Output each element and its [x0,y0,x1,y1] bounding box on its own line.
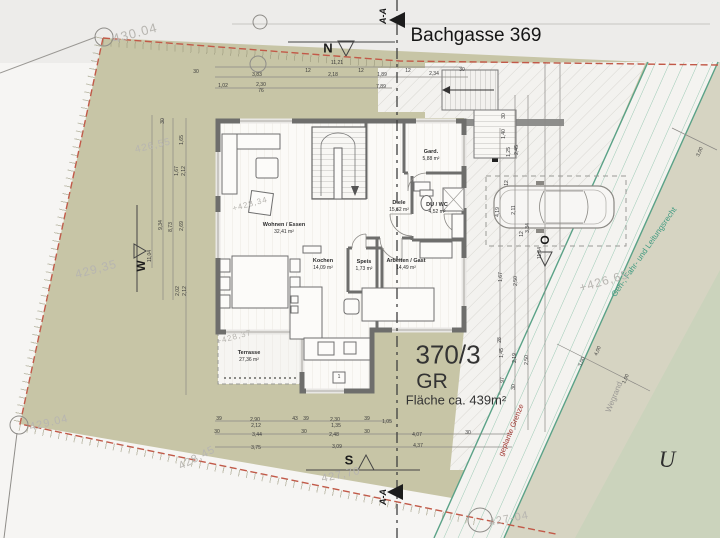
dimension-label: 12 [305,68,311,74]
dimension-label: 2,12 [251,423,261,429]
dimension-label: 3,44 [252,432,262,438]
dimension-label: 12 [519,231,525,237]
dimension-label: 97 [500,377,506,383]
survey-elevation-label: 427-04 [488,509,530,528]
room-name: DU / WC [426,202,448,209]
dimension-label: 4,07 [412,432,422,438]
dimension-label: 1,67 [174,166,180,176]
room-label: Terrasse27,36 m² [238,350,261,364]
dimension-label: 3,00 [577,356,586,367]
room-name: Kochen [313,258,333,265]
dimension-label: 30 [160,118,166,124]
easement-label: Geh-, Fahr- und Leitungsrecht [610,206,679,299]
dimension-label: 1,89 [377,72,387,78]
dimension-label: 2,48 [329,432,339,438]
section-label-bottom: A-A [378,489,388,505]
path-edge-label: Wegrand [604,380,624,413]
survey-elevation-label: 427,70 [320,465,361,485]
dimension-label: 1,35 [331,423,341,429]
compass-north-label: N [323,41,332,56]
dimension-label: 30 [459,67,465,73]
room-area: 4,52 m² [426,209,448,216]
parcel-number: 370/3 [415,340,480,371]
compass-west-label: W [134,260,148,271]
dimension-label: 2,12 [181,166,187,176]
room-label: Wohnen / Essen32,41 m² [263,222,305,236]
dimension-label: 3,34 [525,223,531,233]
room-area: 5,88 m² [423,156,440,163]
dimension-label: 2,12 [182,286,188,296]
dimension-label: 3,00 [695,146,704,157]
dimension-label: 1,40 [501,129,507,139]
dimension-label: 1,45 [499,348,505,358]
dimension-label: 1,02 [218,83,228,89]
dimension-label: 1,00 [621,373,630,384]
dimension-label: 28 [497,337,503,343]
dimension-label: 12 [405,68,411,74]
dimension-label: 2,19 [512,353,518,363]
room-label: Diele15,62 m² [389,200,409,214]
survey-elevation-label: 429,35 [74,257,119,282]
dimension-label: 1,67 [498,272,504,282]
room-area: 15,62 m² [389,207,409,214]
dimension-label: 4,00 [593,345,602,356]
room-label: Gard.5,88 m² [423,149,440,163]
parcel-area: Fläche ca. 439m² [406,393,506,408]
survey-elevation-label: +428,34 [231,195,268,213]
room-name: Arbeiten / Gast [386,258,425,265]
dimension-label: 30 [301,429,307,435]
dimension-label: 12 [358,68,364,74]
neighbor-parcel-label: U [659,447,676,473]
survey-elevation-label: 429.04 [28,413,69,434]
room-label: DU / WC4,52 m² [426,202,448,216]
dimension-label: 4,37 [413,443,423,449]
dimension-label: 39 [364,416,370,422]
room-area: 14,49 m² [386,265,425,272]
dimension-label: 2,18 [328,72,338,78]
dimension-label: 1,05 [382,419,392,425]
dimension-label: 1,25 [506,147,512,157]
dimension-label: 2,02 [175,286,181,296]
room-name: Terrasse [238,350,261,357]
room-name: Diele [389,200,409,207]
dimension-label: 30 [193,69,199,75]
dimension-label: 8,73 [168,222,174,232]
room-area: 32,41 m² [263,229,305,236]
dimension-label: 2,50 [524,355,530,365]
street-name: Bachgasse 369 [411,25,542,47]
dimension-label: 30 [214,429,220,435]
room-label: Arbeiten / Gast14,49 m² [386,258,425,272]
room-name: Wohnen / Essen [263,222,305,229]
dimension-label: 9,34 [158,220,164,230]
section-label-top: A-A [378,8,388,24]
dimension-label: 3,83 [252,72,262,78]
dimension-label: 11,84 [537,247,543,259]
room-label: Kochen14,09 m² [313,258,333,272]
dimension-label: 43 [292,416,298,422]
survey-elevation-label: 428,45 [177,444,218,473]
site-plan: Bachgasse 369 370/3 GR Fläche ca. 439m² … [0,0,720,538]
dimension-label: 30 [511,384,517,390]
dimension-label: 3,75 [251,445,261,451]
planned-boundary-label: geplante Grenze [496,403,525,458]
dimension-label: 76 [258,88,264,94]
parcel-type: GR [416,370,448,394]
dimension-label: 11,04 [147,250,153,262]
dimension-label: 39 [216,416,222,422]
dimension-label: 39 [303,416,309,422]
dimension-label: 3,09 [332,444,342,450]
room-name: Gard. [423,149,440,156]
dimension-label: 1,65 [179,135,185,145]
dimension-label: 4,19 [495,207,501,217]
survey-elevation-label: 430.04 [111,20,159,46]
dimension-label: 2,50 [513,276,519,286]
dimension-label: 12 [504,180,510,186]
dimension-label: 2,11 [511,205,517,214]
room-name: Speis [356,259,373,266]
survey-elevation-label: 426,55 [134,137,172,156]
room-area: 1,73 m² [356,266,373,273]
dimension-label: 2,69 [179,221,185,231]
dimension-label: 11,21 [331,60,343,66]
dimension-label: 7,89 [376,84,386,90]
dimension-label: 2,34 [429,71,439,77]
dimension-label: 2,45 [514,145,520,155]
room-area: 14,09 m² [313,265,333,272]
compass-east-label: O [538,235,552,244]
dimension-label: 30 [465,430,471,436]
compass-south-label: S [345,453,354,468]
room-area: 27,36 m² [238,357,261,364]
labels-layer: Bachgasse 369 370/3 GR Fläche ca. 439m² … [0,0,720,538]
survey-elevation-label: +428,37 [215,328,252,346]
dimension-label: 30 [364,429,370,435]
room-label: Speis1,73 m² [356,259,373,273]
dimension-label: 1 [338,374,341,380]
dimension-label: 30 [501,113,507,119]
